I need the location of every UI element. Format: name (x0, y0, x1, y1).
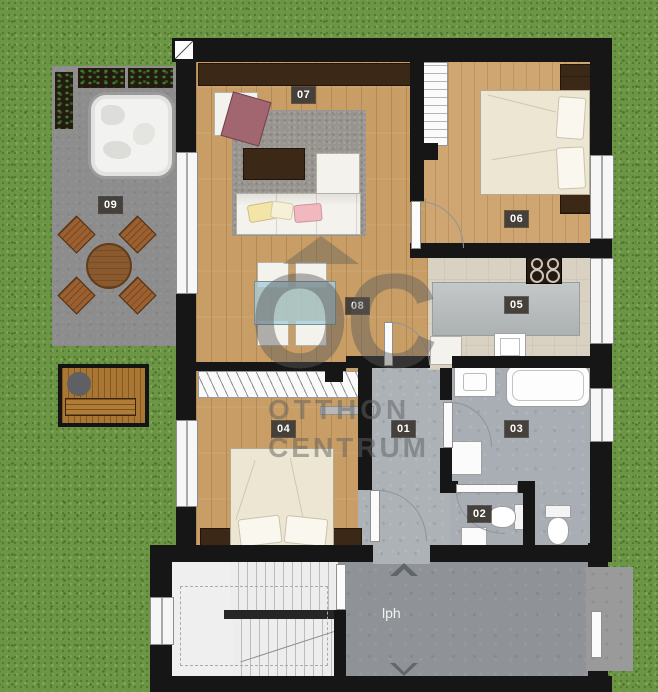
door-wc (456, 484, 518, 493)
bathroom-sink (454, 367, 496, 397)
room-label-08: 08 (346, 298, 369, 314)
door-staircase (336, 564, 346, 610)
wall-left (176, 62, 196, 152)
room-label-03: 03 (505, 421, 528, 437)
wall-right (590, 440, 612, 545)
planter-box (55, 72, 73, 129)
up-arrow-inner (395, 569, 413, 578)
window-bedroom04 (176, 420, 198, 507)
door-bathroom (443, 402, 453, 448)
hall-corridor-passage (373, 545, 430, 564)
room-label-05: 05 (505, 297, 528, 313)
window-staircase (150, 597, 174, 645)
wall-wc-right (523, 481, 535, 548)
bathtub (506, 365, 590, 407)
wall-right (590, 237, 612, 258)
double-bed (480, 90, 590, 195)
double-bed (230, 448, 334, 548)
room-label-02: 02 (468, 506, 491, 522)
room-label-06: 06 (505, 211, 528, 227)
hot-tub (88, 92, 175, 179)
wall-stair-corridor (334, 610, 346, 678)
door-bedroom06 (411, 201, 421, 249)
stair-outline-dashed (180, 586, 328, 666)
room-label-04: 04 (272, 421, 295, 437)
toilet (545, 505, 571, 545)
door-dining-hall (384, 322, 393, 366)
wall-living-bedroom06 (410, 62, 424, 202)
entrance-door (591, 611, 602, 658)
wall-right (590, 62, 612, 155)
room-label-07: 07 (292, 87, 315, 103)
room-label-01: 01 (392, 421, 415, 437)
wall-stub (418, 143, 438, 160)
built-in-wardrobe (198, 371, 372, 398)
wall-living-bedroom04 (196, 362, 346, 371)
door-bedroom04 (370, 490, 380, 542)
sofa-pillow-cream (270, 201, 294, 221)
planter-box (128, 68, 173, 88)
closet-shelves (422, 62, 448, 146)
tv-console (198, 63, 415, 86)
window-bedroom06 (590, 155, 614, 239)
wall-top (172, 38, 612, 62)
wall-hall-bath (440, 368, 452, 400)
cooktop (526, 254, 562, 284)
wall-mid-horizontal (172, 545, 373, 562)
wall-bedroom04-hall (358, 362, 372, 490)
dining-table (254, 281, 336, 325)
wall-mid-horizontal (430, 545, 612, 562)
window-living (176, 152, 198, 294)
down-arrow-inner (395, 663, 413, 672)
sofa-pillow-pink (293, 203, 322, 223)
wall-bottom (150, 676, 612, 692)
garden-bench (58, 364, 149, 427)
window-kitchen (590, 258, 614, 344)
wall-right (590, 342, 612, 388)
wall-left (176, 292, 196, 420)
wall-kitchen-bath (452, 356, 590, 368)
room-label-09: 09 (99, 197, 122, 213)
floor-plan: lph 07 06 05 08 09 (0, 0, 658, 692)
coffee-table (243, 148, 305, 180)
window-bathroom (590, 388, 614, 442)
corner-marker (175, 41, 193, 59)
terrace-table (86, 243, 132, 289)
wall-stub (358, 548, 372, 562)
wall-stub (325, 362, 343, 382)
planter-box (78, 68, 125, 88)
